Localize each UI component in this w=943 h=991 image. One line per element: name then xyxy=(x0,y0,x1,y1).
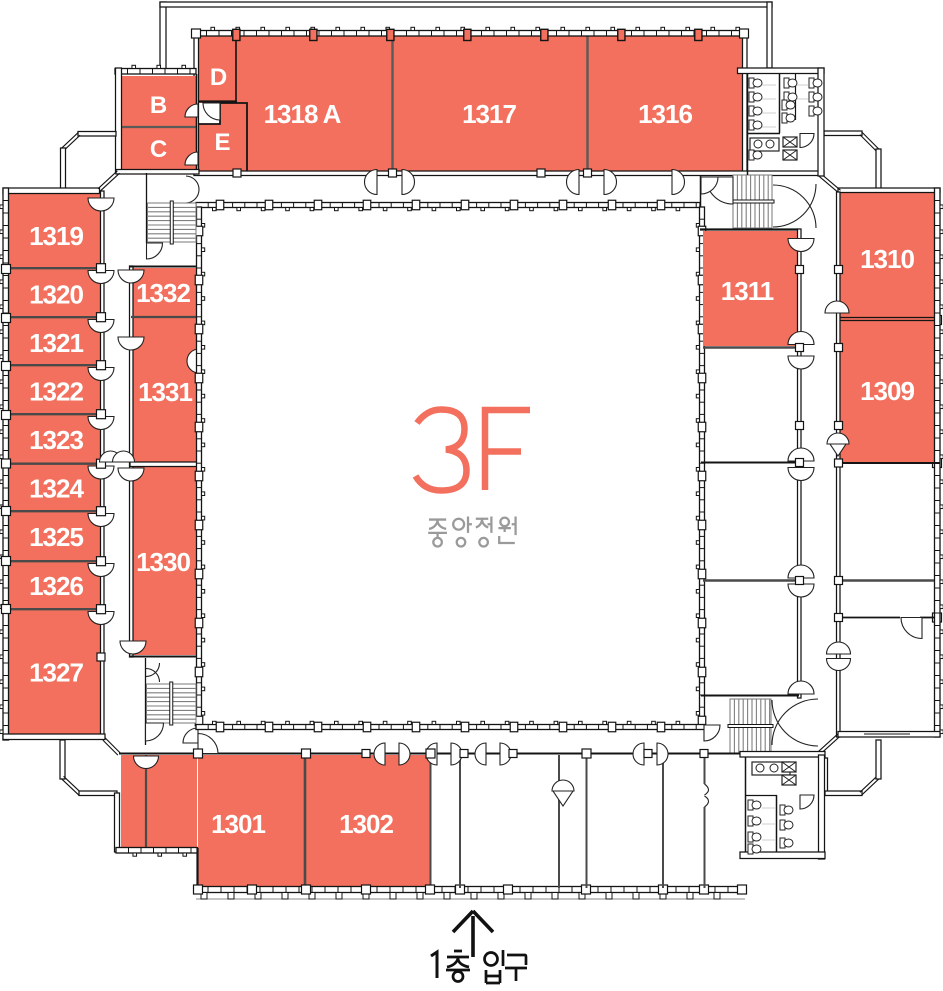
svg-text:B: B xyxy=(150,92,167,119)
svg-text:1324: 1324 xyxy=(29,473,84,503)
svg-text:1326: 1326 xyxy=(29,571,83,601)
svg-text:C: C xyxy=(150,136,167,163)
svg-text:1311: 1311 xyxy=(721,276,774,306)
svg-text:1331: 1331 xyxy=(138,377,192,407)
svg-text:1330: 1330 xyxy=(136,547,190,577)
svg-text:1309: 1309 xyxy=(860,376,914,406)
svg-text:1317: 1317 xyxy=(462,99,516,129)
svg-text:1310: 1310 xyxy=(860,244,914,274)
svg-text:1321: 1321 xyxy=(29,328,83,358)
svg-text:1320: 1320 xyxy=(29,280,83,310)
svg-text:1332: 1332 xyxy=(136,278,190,308)
svg-text:1322: 1322 xyxy=(29,377,83,407)
svg-text:1319: 1319 xyxy=(29,221,83,251)
svg-text:1327: 1327 xyxy=(29,658,83,688)
svg-text:1323: 1323 xyxy=(29,425,83,455)
svg-text:D: D xyxy=(210,64,227,91)
svg-text:1302: 1302 xyxy=(339,809,393,839)
svg-text:1301: 1301 xyxy=(211,809,265,839)
svg-text:E: E xyxy=(214,129,230,156)
svg-text:1325: 1325 xyxy=(29,522,83,552)
svg-text:1318 A: 1318 A xyxy=(264,99,342,129)
svg-text:1316: 1316 xyxy=(638,99,692,129)
